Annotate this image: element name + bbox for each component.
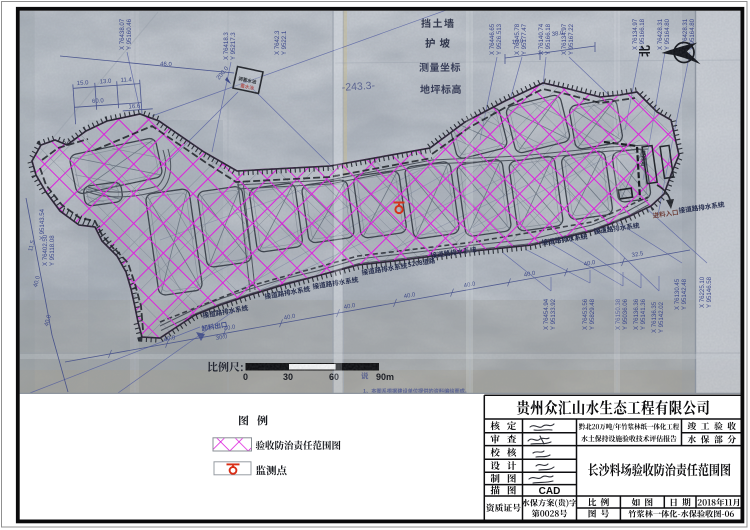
svg-text:CAD: CAD: [539, 486, 561, 497]
